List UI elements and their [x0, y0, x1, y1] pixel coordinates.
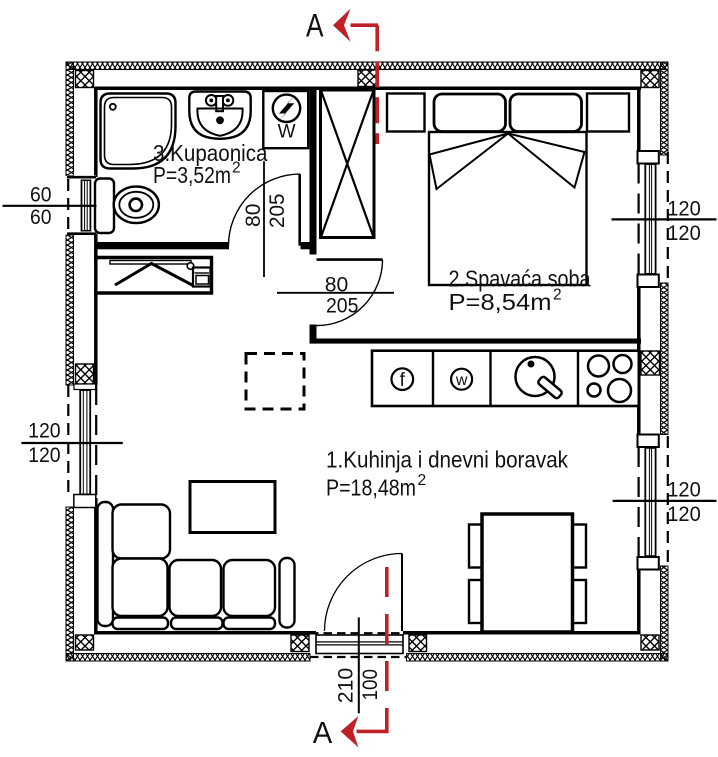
svg-text:W: W — [278, 122, 296, 143]
svg-text:60: 60 — [30, 183, 52, 206]
svg-text:60: 60 — [30, 206, 52, 229]
svg-text:205: 205 — [266, 193, 289, 228]
svg-text:120: 120 — [667, 197, 701, 220]
svg-text:P=3,52m: P=3,52m — [153, 162, 231, 188]
svg-text:2: 2 — [232, 160, 241, 177]
svg-text:205: 205 — [326, 294, 359, 317]
svg-text:210: 210 — [335, 668, 358, 704]
svg-text:100: 100 — [359, 669, 382, 701]
svg-text:1.Kuhinja i dnevni boravak: 1.Kuhinja i dnevni boravak — [326, 447, 568, 473]
svg-text:A: A — [313, 715, 333, 750]
svg-text:80: 80 — [242, 203, 265, 227]
svg-text:P=8,54m: P=8,54m — [449, 289, 552, 315]
svg-text:120: 120 — [28, 420, 61, 443]
svg-text:A: A — [306, 8, 324, 44]
svg-text:P=18,48m: P=18,48m — [326, 474, 416, 500]
svg-text:w: w — [455, 372, 468, 389]
svg-text:2: 2 — [418, 472, 427, 489]
svg-text:120: 120 — [667, 503, 701, 526]
svg-text:120: 120 — [667, 222, 701, 245]
svg-text:f: f — [400, 370, 406, 391]
svg-text:2.Spavaća soba: 2.Spavaća soba — [449, 266, 591, 292]
svg-text:80: 80 — [325, 273, 349, 296]
svg-text:120: 120 — [28, 444, 61, 467]
svg-text:2: 2 — [553, 287, 562, 304]
svg-text:120: 120 — [667, 478, 701, 501]
